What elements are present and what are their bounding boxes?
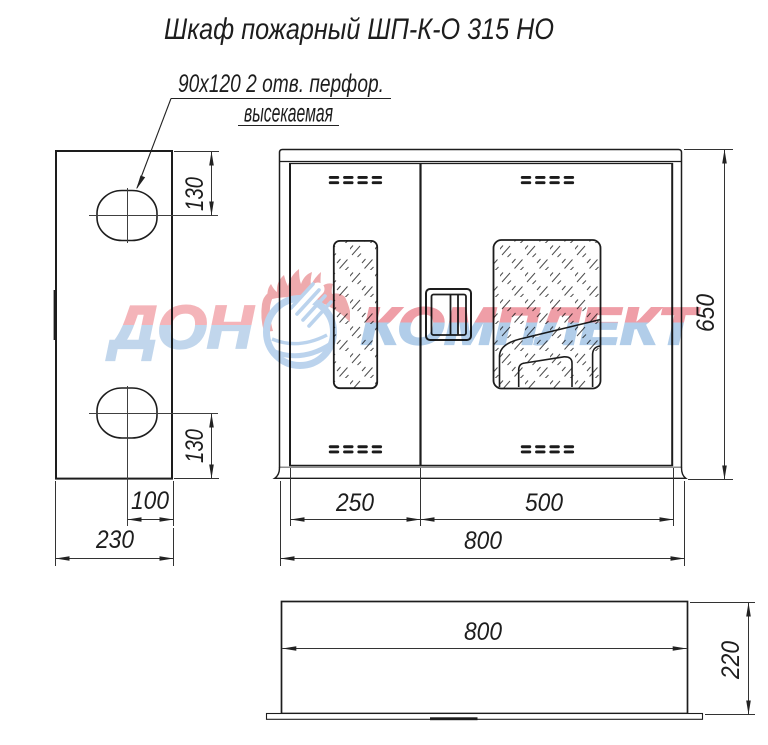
svg-text:100: 100 (131, 487, 169, 515)
svg-text:90х120 2 отв. перфор.: 90х120 2 отв. перфор. (178, 70, 384, 98)
svg-text:высекаемая: высекаемая (244, 98, 333, 128)
svg-text:250: 250 (335, 489, 374, 517)
svg-text:800: 800 (464, 618, 502, 646)
svg-text:130: 130 (181, 429, 209, 463)
svg-text:500: 500 (525, 489, 563, 517)
svg-text:220: 220 (717, 641, 745, 680)
svg-text:Шкаф пожарный ШП-К-О 315 НО: Шкаф пожарный ШП-К-О 315 НО (164, 13, 554, 46)
svg-text:КОМПЛЕКТ: КОМПЛЕКТ (361, 298, 700, 356)
svg-text:130: 130 (181, 177, 209, 211)
svg-text:230: 230 (95, 526, 134, 554)
svg-text:ДОН: ДОН (106, 294, 255, 361)
svg-text:650: 650 (692, 294, 720, 332)
svg-text:800: 800 (464, 527, 502, 555)
